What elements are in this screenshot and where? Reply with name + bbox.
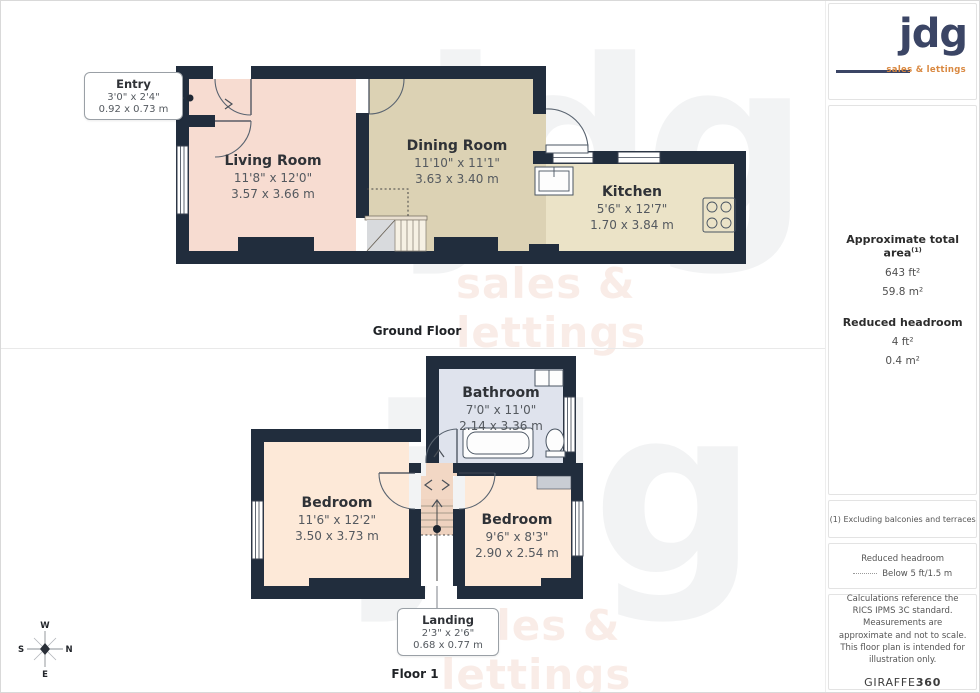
room-dimensions-imperial: 2'3" x 2'6" <box>404 628 492 639</box>
dotted-line-sample <box>853 573 877 574</box>
provider-name: GIRAFFE <box>864 676 916 689</box>
agency-logo: jdg sales & lettings <box>828 3 977 100</box>
room-name: Living Room <box>224 153 321 169</box>
logo-tagline: sales & lettings <box>886 65 966 75</box>
plan-area: jdg sales & lettings jdg sales & letting… <box>1 1 825 692</box>
room-dimensions-metric: 0.68 x 0.77 m <box>404 640 492 651</box>
room-dimensions-imperial: 11'8" x 12'0" <box>224 171 321 185</box>
room-dimensions-metric: 0.92 x 0.73 m <box>91 104 176 115</box>
room-name: Entry <box>91 77 176 91</box>
room-name: Landing <box>404 613 492 627</box>
area-footnote: (1) Excluding balconies and terraces <box>828 500 977 538</box>
stairs-floor1 <box>421 499 453 586</box>
sink-icon <box>535 167 573 195</box>
room-name: Kitchen <box>590 184 674 200</box>
provider-logo: GIRAFFE360 <box>864 675 941 691</box>
legend-title: Reduced headroom <box>861 554 944 564</box>
room-dimensions-metric: 3.50 x 3.73 m <box>295 529 379 543</box>
provider-suffix: 360 <box>916 676 941 689</box>
bathroom-sink-icon <box>535 370 563 386</box>
kitchen-window <box>618 152 660 163</box>
landing-callout: Landing 2'3" x 2'6" 0.68 x 0.77 m <box>397 608 499 656</box>
room-dimensions-metric: 3.57 x 3.66 m <box>224 187 321 201</box>
bedroom-2-label: Bedroom 9'6" x 8'3" 2.90 x 2.54 m <box>475 512 559 560</box>
chimney-breast <box>238 237 314 251</box>
stairs-ground <box>365 216 427 251</box>
area-footnote-marker: (1) <box>911 246 921 254</box>
floor-1-title: Floor 1 <box>391 667 438 681</box>
landing-area <box>426 463 457 476</box>
kitchen-window <box>553 152 593 163</box>
disclaimer-text: Calculations reference the RICS IPMS 3C … <box>838 593 967 667</box>
toilet-icon <box>546 429 565 457</box>
area-value-m: 59.8 m² <box>829 286 976 298</box>
room-name: Bedroom <box>295 495 379 511</box>
room-dimensions-imperial: 9'6" x 8'3" <box>475 530 559 544</box>
disclaimer: Calculations reference the RICS IPMS 3C … <box>828 594 977 690</box>
room-dimensions-metric: 3.63 x 3.40 m <box>407 172 508 186</box>
bedroom-1-window <box>252 501 263 559</box>
headroom-value-ft: 4 ft² <box>829 336 976 348</box>
headroom-value-m: 0.4 m² <box>829 355 976 367</box>
room-name: Bedroom <box>475 512 559 528</box>
room-dimensions-metric: 1.70 x 3.84 m <box>590 218 674 232</box>
room-dimensions-metric: 2.90 x 2.54 m <box>475 546 559 560</box>
compass-south-label: S <box>18 645 24 655</box>
info-sidebar: jdg sales & lettings Approximate total a… <box>825 1 979 692</box>
area-title: Approximate total area(1) <box>829 233 976 260</box>
headroom-title: Reduced headroom <box>829 316 976 329</box>
chimney-breast <box>434 237 498 251</box>
living-room-window <box>177 146 188 214</box>
room-dimensions-metric: 2.14 x 3.36 m <box>459 419 543 433</box>
legend-value: Below 5 ft/1.5 m <box>882 569 952 579</box>
ground-floor-title: Ground Floor <box>373 324 462 338</box>
compass-north-label: N <box>65 645 72 655</box>
room-dimensions-imperial: 11'10" x 11'1" <box>407 156 508 170</box>
back-door <box>546 109 588 153</box>
chimney-breast <box>309 578 409 586</box>
legend-line: Below 5 ft/1.5 m <box>853 569 952 579</box>
bedroom-1-label: Bedroom 11'6" x 12'2" 3.50 x 3.73 m <box>295 495 379 543</box>
compass-east-label: E <box>42 670 48 680</box>
area-value-ft: 643 ft² <box>829 267 976 279</box>
floorplan-page: jdg sales & lettings jdg sales & letting… <box>0 0 980 693</box>
compass-icon: W N E S <box>18 621 73 680</box>
room-dimensions-imperial: 7'0" x 11'0" <box>459 403 543 417</box>
area-summary: Approximate total area(1) 643 ft² 59.8 m… <box>828 105 977 495</box>
bathroom-window <box>564 397 575 452</box>
flue-cupboard <box>537 476 571 489</box>
room-dimensions-imperial: 5'6" x 12'7" <box>590 202 674 216</box>
room-dimensions-imperial: 3'0" x 2'4" <box>91 92 176 103</box>
headroom-legend: Reduced headroom Below 5 ft/1.5 m <box>828 543 977 589</box>
room-dimensions-imperial: 11'6" x 12'2" <box>295 513 379 527</box>
bathroom-label: Bathroom 7'0" x 11'0" 2.14 x 3.36 m <box>459 385 543 433</box>
area-title-text: Approximate total area <box>846 233 959 260</box>
room-name: Dining Room <box>407 138 508 154</box>
logo-text: jdg <box>899 14 967 54</box>
compass-west-label: W <box>40 621 50 631</box>
kitchen-label: Kitchen 5'6" x 12'7" 1.70 x 3.84 m <box>590 184 674 232</box>
dining-room-label: Dining Room 11'10" x 11'1" 3.63 x 3.40 m <box>407 138 508 186</box>
spacer <box>829 298 976 316</box>
entry-callout: Entry 3'0" x 2'4" 0.92 x 0.73 m <box>84 72 183 120</box>
bedroom-2-window <box>572 501 583 556</box>
room-name: Bathroom <box>459 385 543 401</box>
living-room-label: Living Room 11'8" x 12'0" 3.57 x 3.66 m <box>224 153 321 201</box>
stairs-direction-dot <box>433 525 441 533</box>
